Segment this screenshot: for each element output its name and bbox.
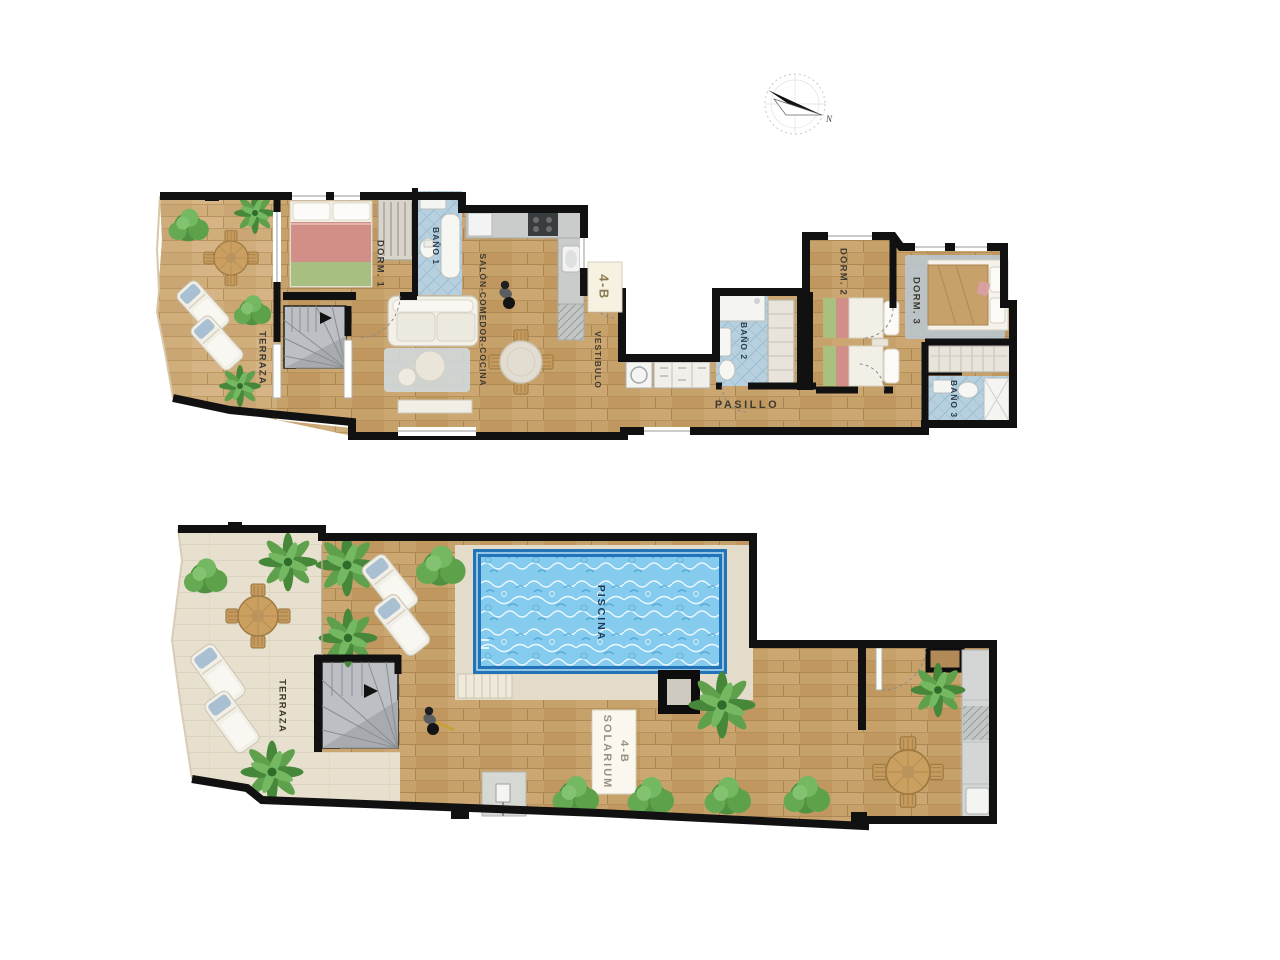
label-piscina: PISCINA bbox=[595, 585, 607, 642]
fridge bbox=[468, 213, 492, 236]
pasillo-appliances bbox=[626, 362, 710, 388]
living-rug bbox=[384, 348, 470, 392]
label-vestibulo: VESTIBULO bbox=[593, 331, 603, 389]
unit-plaque: 4-B bbox=[588, 262, 622, 312]
sofa bbox=[388, 296, 478, 346]
compass-north-label: N bbox=[825, 114, 833, 124]
hall-wardrobe bbox=[768, 300, 794, 386]
bano2-toilet bbox=[719, 360, 735, 380]
bano1-bathtub bbox=[441, 214, 460, 278]
terrace-sliding-door bbox=[273, 344, 281, 398]
solarium-plaque: SOLARIUM 4-B bbox=[592, 710, 636, 794]
dorm3-wardrobe bbox=[928, 346, 1010, 372]
dorm1-bed bbox=[290, 201, 372, 287]
floor-plan-image: N bbox=[0, 0, 1280, 960]
label-solarium: SOLARIUM bbox=[601, 715, 613, 790]
label-dorm2: DORM. 2 bbox=[838, 248, 849, 296]
salon-sliding-door bbox=[344, 340, 352, 398]
label-terraza-upper: TERRAZA bbox=[257, 331, 268, 385]
label-bano3: BAÑO 3 bbox=[949, 380, 959, 418]
bano3-room bbox=[928, 376, 1010, 422]
label-pasillo: PASILLO bbox=[715, 399, 779, 411]
unit-plaque-label: 4-B bbox=[597, 274, 612, 299]
label-salon: SALÓN-COMEDOR-COCINA bbox=[478, 253, 489, 386]
swimming-pool: PISCINA bbox=[477, 553, 723, 670]
outdoor-sink bbox=[966, 788, 989, 814]
bano3-toilet bbox=[958, 382, 978, 398]
label-bano1: BAÑO 1 bbox=[431, 227, 441, 265]
label-dorm1: DORM. 1 bbox=[375, 240, 386, 288]
dorm3-bed bbox=[928, 260, 1008, 330]
solarium-staircase bbox=[322, 662, 398, 748]
label-terraza-lower: TERRAZA bbox=[277, 679, 288, 733]
label-solarium-unit: 4-B bbox=[618, 740, 630, 764]
wing-door-leaf bbox=[876, 648, 882, 690]
stove bbox=[528, 213, 558, 236]
label-dorm3: DORM. 3 bbox=[911, 277, 922, 325]
outdoor-kitchen bbox=[962, 650, 992, 818]
upper-staircase bbox=[284, 306, 346, 368]
label-bano2: BAÑO 2 bbox=[739, 322, 749, 360]
wing-closet bbox=[928, 648, 962, 670]
apron-steps bbox=[458, 674, 512, 698]
console-table bbox=[398, 400, 472, 413]
